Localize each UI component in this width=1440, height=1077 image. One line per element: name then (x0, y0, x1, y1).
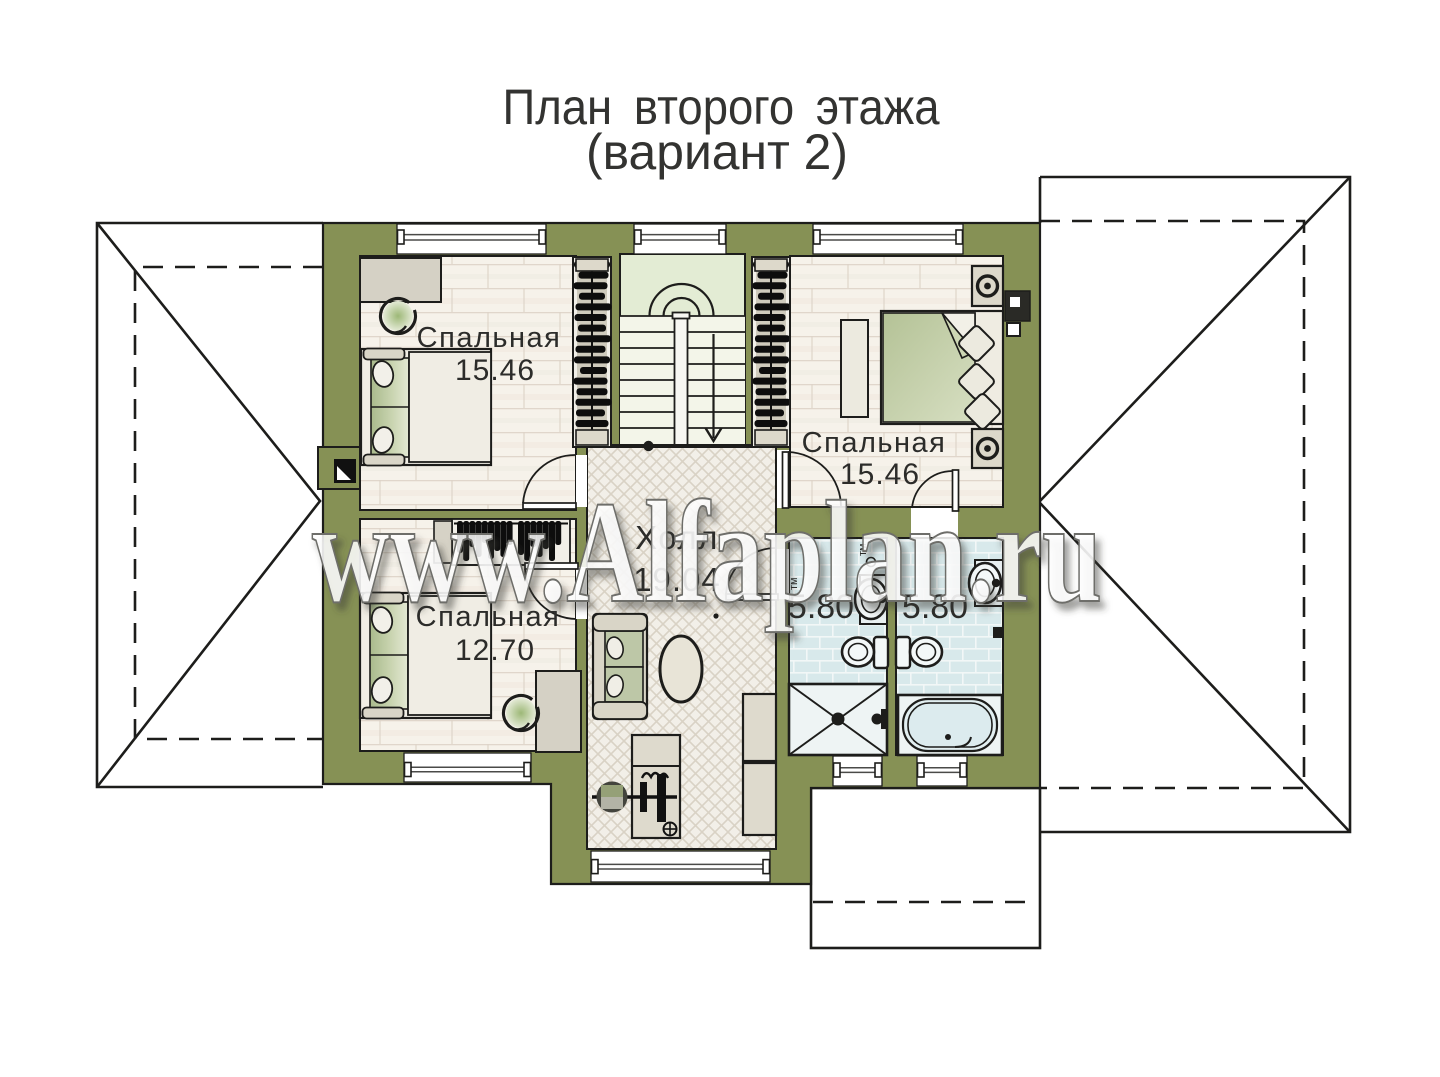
svg-text:12.70: 12.70 (455, 634, 535, 667)
svg-text:Спальная: Спальная (417, 322, 562, 354)
svg-text:www.Alfaplan.ru: www.Alfaplan.ru (312, 471, 1102, 633)
svg-text:Спальная: Спальная (802, 427, 947, 459)
svg-text:(вариант 2): (вариант 2) (586, 124, 848, 180)
svg-text:15.46: 15.46 (455, 354, 535, 387)
